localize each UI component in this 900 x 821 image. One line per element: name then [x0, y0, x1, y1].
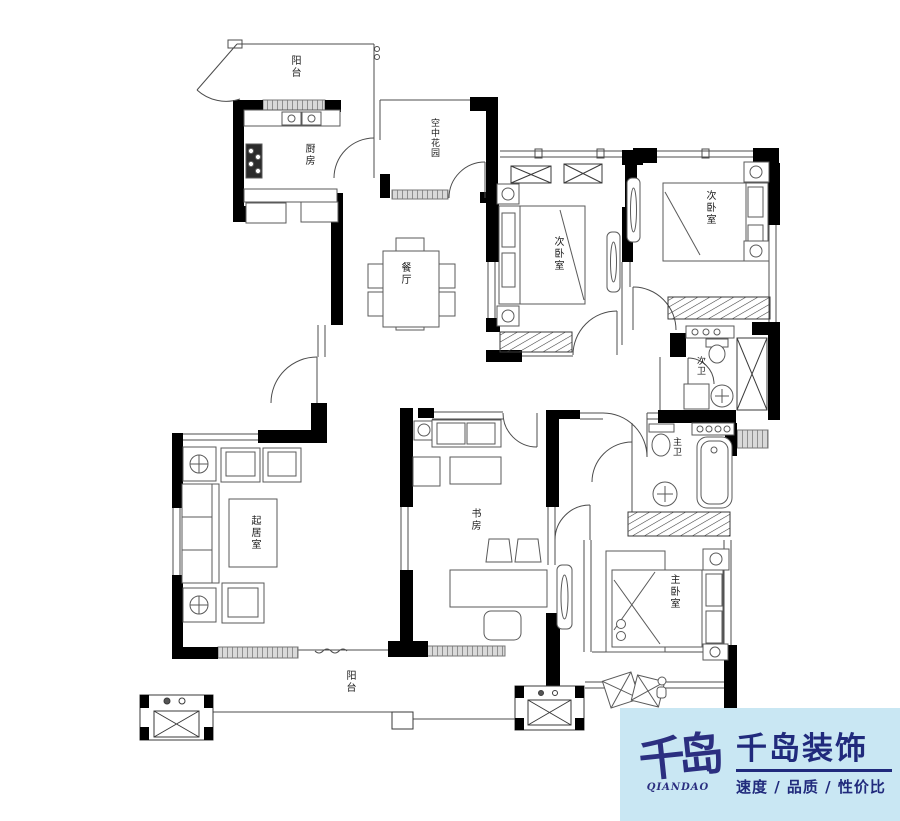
balcony-post: [392, 712, 413, 729]
floorplan-drawing: [0, 0, 900, 821]
bath-second-fixtures: [684, 326, 734, 409]
terrace-items: [602, 672, 666, 708]
room-label-study: 书房: [469, 508, 479, 532]
room-label-bedroom-second-right: 次卧室: [704, 190, 714, 226]
logo-mark-block: 千岛 QIANDAO: [628, 736, 728, 793]
closet-master: [628, 512, 730, 536]
room-label-sky-garden: 空中花园: [429, 118, 438, 158]
logo-text-block: 千岛装饰 速度 / 品质 / 性价比: [736, 732, 892, 797]
floorplan-page: 阳台 厨房 空中花园 次卧室 次卧室 餐厅 次卫 主卫 起居室 书房 主卧室 阳…: [0, 0, 900, 821]
room-label-balcony-bottom: 阳台: [344, 670, 354, 694]
bath-master-fixtures: [649, 423, 734, 508]
company-logo: 千岛 QIANDAO 千岛装饰 速度 / 品质 / 性价比: [620, 708, 900, 821]
bed-second-right: [663, 162, 769, 261]
room-label-bedroom-second-left: 次卧室: [552, 236, 562, 272]
closet-bedroom-right: [668, 297, 770, 319]
bed-second-left: [497, 184, 585, 326]
logo-tagline: 速度 / 品质 / 性价比: [736, 776, 892, 797]
living-furniture: [182, 447, 301, 623]
room-label-dining: 餐厅: [399, 262, 409, 286]
dining-set: [368, 238, 455, 330]
room-label-kitchen: 厨房: [303, 143, 313, 167]
closet-bedroom-left: [500, 332, 572, 352]
ac-platform-left: [140, 695, 213, 740]
furniture: [182, 110, 769, 708]
duct-shaft: [737, 338, 767, 410]
room-label-bath-master: 主卫: [671, 437, 680, 457]
wardrobe-boxes: [511, 164, 602, 183]
ac-platform-right: [515, 686, 584, 730]
room-label-living: 起居室: [249, 515, 259, 551]
study-furniture: [413, 420, 547, 640]
logo-company-name: 千岛装饰: [736, 732, 892, 766]
kitchen-fixtures: [244, 110, 340, 223]
room-label-bath-second: 次卫: [695, 356, 704, 376]
logo-mark: 千岛: [626, 731, 730, 785]
logo-divider: [736, 769, 892, 772]
room-label-balcony-top: 阳台: [289, 55, 299, 79]
room-label-bedroom-master: 主卧室: [668, 574, 678, 610]
